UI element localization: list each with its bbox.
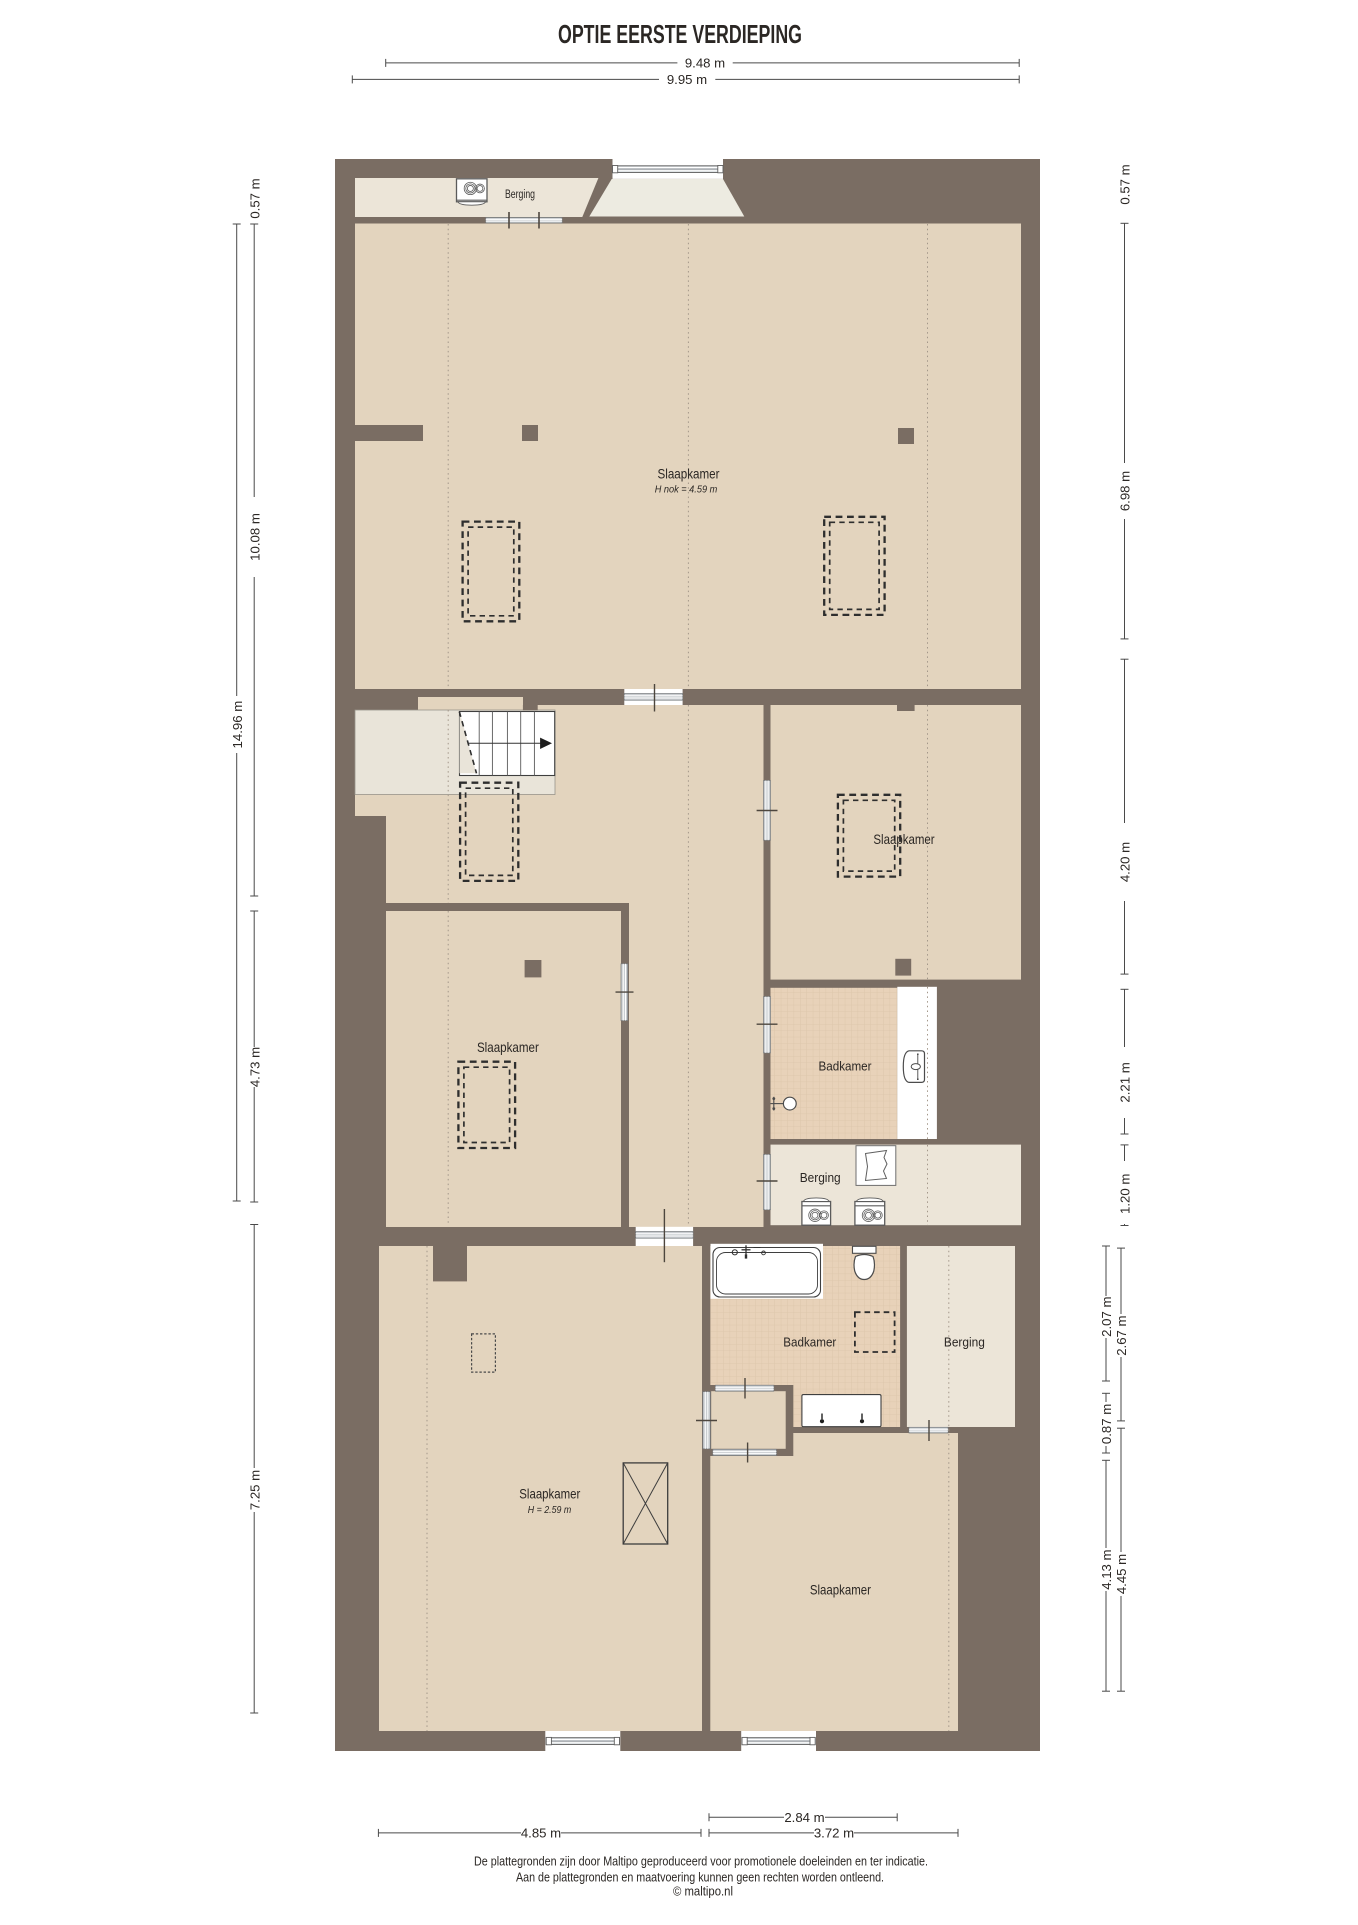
svg-text:6.98 m: 6.98 m xyxy=(1118,471,1133,511)
svg-text:Badkamer: Badkamer xyxy=(819,1058,873,1073)
svg-text:H nok = 4.59 m: H nok = 4.59 m xyxy=(655,484,718,495)
svg-text:Berging: Berging xyxy=(505,189,535,201)
svg-text:4.20 m: 4.20 m xyxy=(1118,842,1133,882)
svg-text:Slaapkamer: Slaapkamer xyxy=(658,467,720,482)
svg-text:Slaapkamer: Slaapkamer xyxy=(810,1582,871,1597)
svg-text:4.85 m: 4.85 m xyxy=(521,1826,561,1841)
svg-text:2.67 m: 2.67 m xyxy=(1114,1315,1129,1355)
svg-text:10.08 m: 10.08 m xyxy=(247,513,262,561)
svg-text:H = 2.59 m: H = 2.59 m xyxy=(528,1505,572,1516)
svg-text:Aan de plattegronden en maatvo: Aan de plattegronden en maatvoering kunn… xyxy=(516,1870,884,1885)
svg-text:3.72 m: 3.72 m xyxy=(814,1826,854,1841)
svg-text:2.21 m: 2.21 m xyxy=(1118,1062,1133,1102)
svg-text:4.73 m: 4.73 m xyxy=(247,1047,262,1087)
svg-text:Slaapkamer: Slaapkamer xyxy=(873,832,935,847)
svg-text:© maltipo.nl: © maltipo.nl xyxy=(673,1885,733,1899)
svg-text:Slaapkamer: Slaapkamer xyxy=(477,1040,539,1055)
svg-text:1.20 m: 1.20 m xyxy=(1118,1174,1133,1214)
svg-text:0.57 m: 0.57 m xyxy=(1118,164,1133,204)
svg-text:4.13 m: 4.13 m xyxy=(1099,1549,1114,1589)
svg-text:Slaapkamer: Slaapkamer xyxy=(519,1486,580,1501)
svg-text:De plattegronden zijn door Mal: De plattegronden zijn door Maltipo gepro… xyxy=(474,1854,928,1869)
svg-text:Berging: Berging xyxy=(800,1170,841,1185)
svg-text:2.84 m: 2.84 m xyxy=(784,1810,824,1825)
svg-text:7.25 m: 7.25 m xyxy=(247,1470,262,1510)
svg-text:0.87 m: 0.87 m xyxy=(1099,1404,1114,1444)
svg-text:4.45 m: 4.45 m xyxy=(1114,1554,1129,1594)
svg-text:0.57 m: 0.57 m xyxy=(247,178,262,218)
svg-text:Berging: Berging xyxy=(944,1335,985,1350)
svg-text:Badkamer: Badkamer xyxy=(783,1335,837,1350)
svg-text:2.07 m: 2.07 m xyxy=(1099,1297,1114,1337)
svg-text:9.95 m: 9.95 m xyxy=(667,72,707,87)
svg-text:9.48 m: 9.48 m xyxy=(685,56,725,71)
svg-text:14.96 m: 14.96 m xyxy=(230,701,245,749)
svg-text:OPTIE EERSTE VERDIEPING: OPTIE EERSTE VERDIEPING xyxy=(558,19,802,49)
